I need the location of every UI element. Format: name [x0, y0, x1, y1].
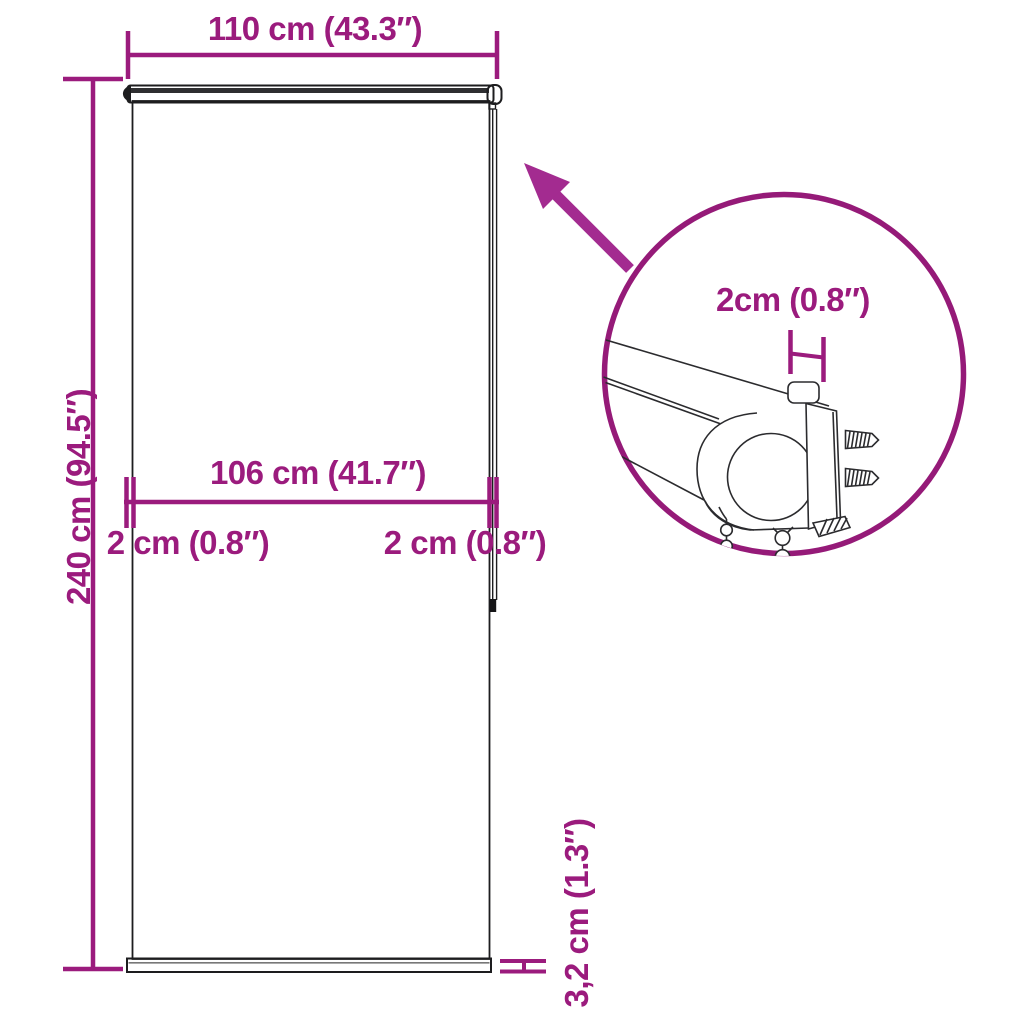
bottom-bar-dimension — [500, 961, 546, 972]
tube-highlight-line — [604, 377, 720, 419]
total-height-label: 240 cm (94.5″) — [60, 389, 97, 605]
right-offset-label: 2 cm (0.8″) — [384, 524, 547, 561]
bracket-detail-drawing — [604, 340, 879, 566]
roller-left-end-cap — [123, 86, 131, 103]
bracket-depth-dimension — [791, 330, 824, 382]
detail-arrow-icon — [524, 163, 630, 269]
end-cap-inner-rim — [728, 434, 815, 521]
screw-icon — [846, 431, 879, 449]
bracket-tab — [788, 382, 819, 403]
bottom-bar — [127, 959, 491, 973]
diagram-svg: 110 cm (43.3″) 240 cm (94.5″) 106 cm (41… — [0, 0, 1024, 1024]
screw-icon — [846, 469, 879, 487]
bottom-bar-label: 3,2 cm (1.3″) — [558, 818, 595, 1007]
tube-highlight-line — [606, 383, 722, 425]
chain-connector — [490, 599, 496, 612]
product-dimension-diagram: 110 cm (43.3″) 240 cm (94.5″) 106 cm (41… — [0, 0, 1024, 1024]
fabric-width-label: 106 cm (41.7″) — [210, 454, 426, 491]
total-width-label: 110 cm (43.3″) — [208, 10, 422, 47]
left-offset-label: 2 cm (0.8″) — [107, 524, 270, 561]
bracket-depth-label: 2cm (0.8″) — [716, 281, 870, 318]
tube-bottom-edge — [621, 456, 705, 500]
